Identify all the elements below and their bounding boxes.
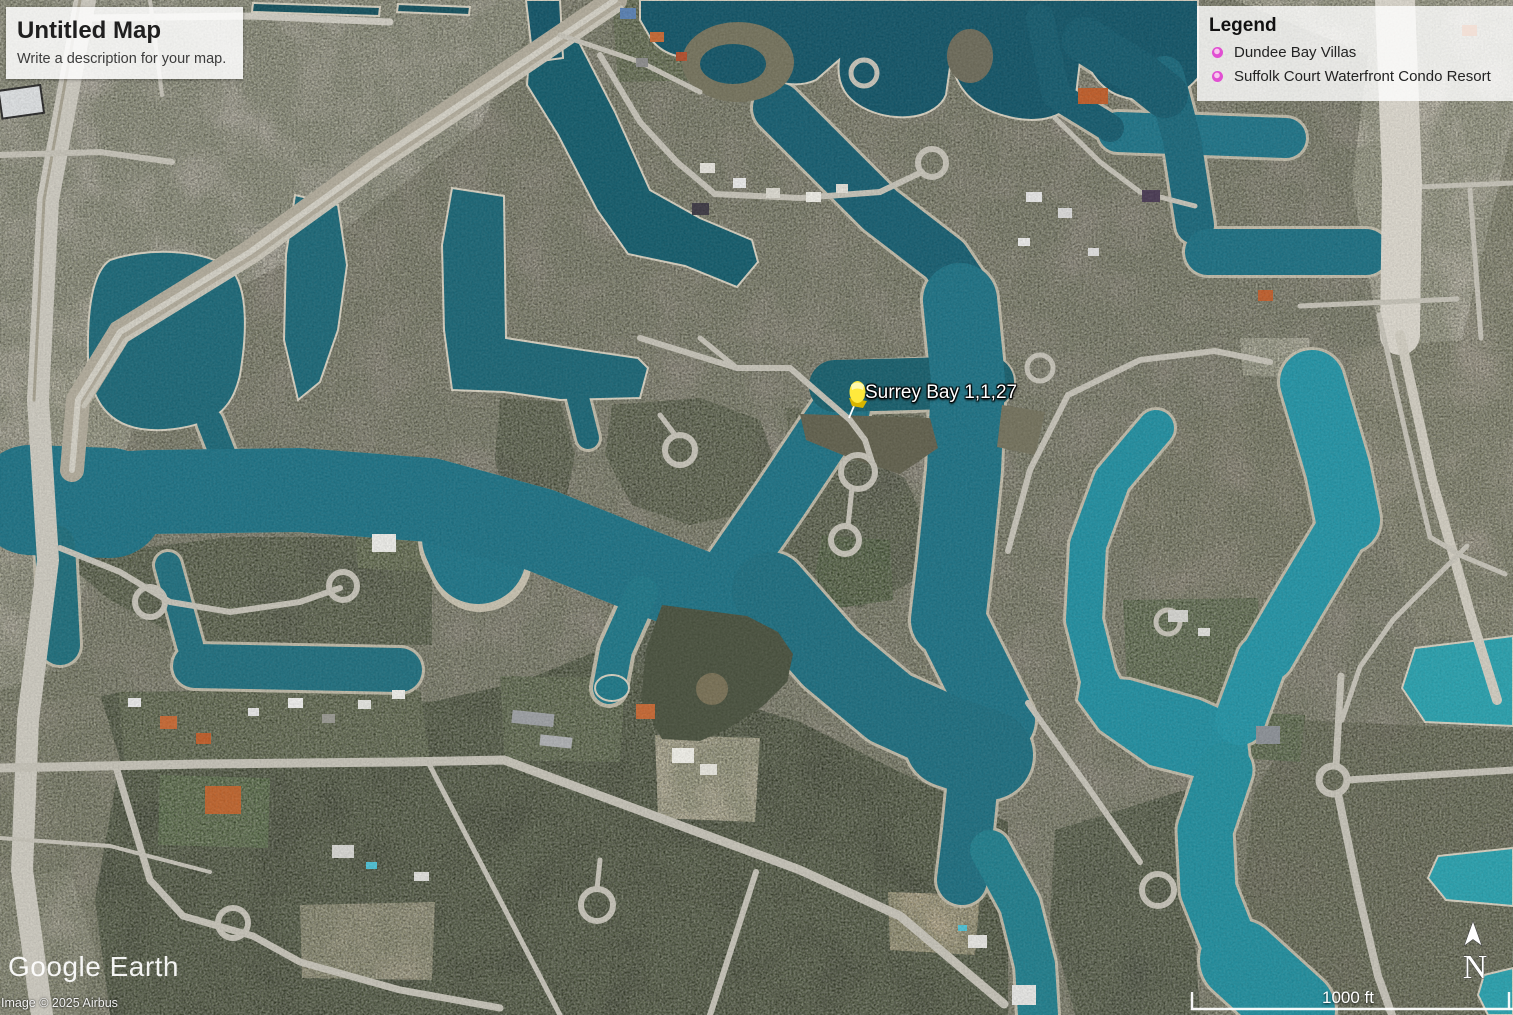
svg-text:N: N — [1463, 949, 1488, 986]
